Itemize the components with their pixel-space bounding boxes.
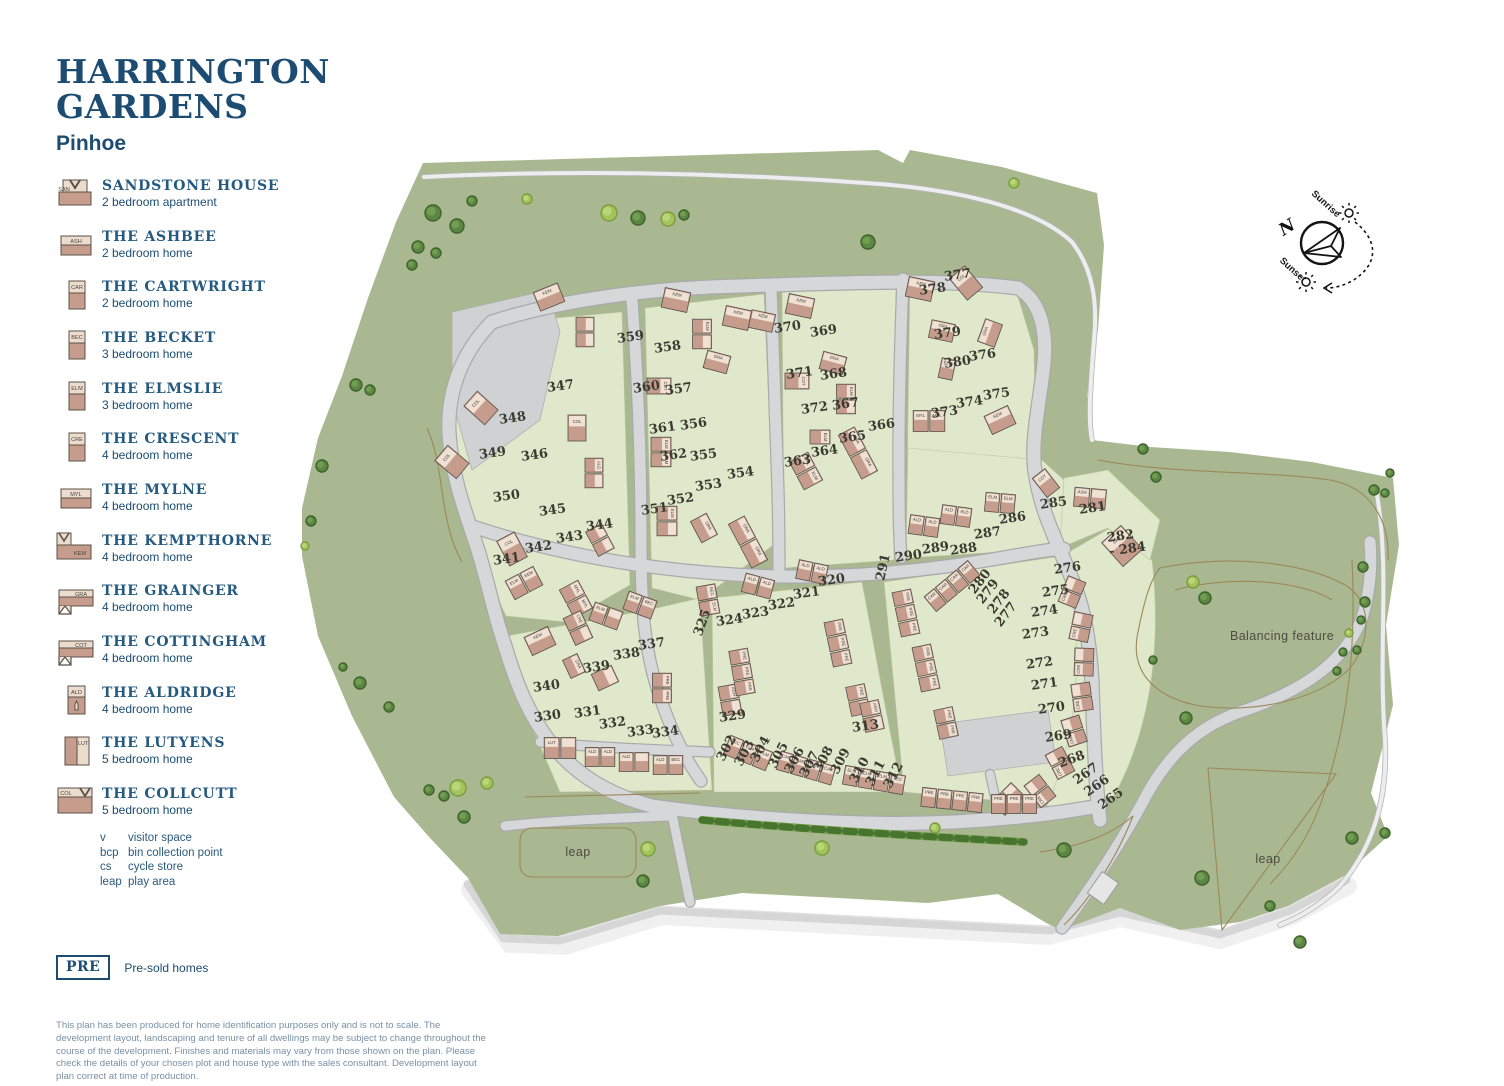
legend-item-lutyens: LUT THE LUTYENS 5 bedroom home: [56, 726, 279, 777]
house-type-legend: SAN SANDSTONE HOUSE 2 bedroom apartment …: [56, 168, 279, 827]
svg-text:PRE: PRE: [956, 793, 965, 799]
svg-text:ALD: ALD: [588, 749, 596, 754]
svg-text:ASH: ASH: [70, 239, 82, 245]
legend-item-mylne: MYL THE MYLNE 4 bedroom home: [56, 472, 279, 523]
key-label: bin collection point: [128, 846, 223, 861]
svg-text:MYL: MYL: [916, 413, 925, 418]
legend-item-collcutt: COL THE COLLCUTT 5 bedroom home: [56, 776, 279, 827]
legend-item-elmslie: ELM THE ELMSLIE 3 bedroom home: [56, 371, 279, 422]
house-type-name: THE BECKET: [102, 330, 216, 346]
house-type-name: THE LUTYENS: [102, 735, 225, 751]
house-type-icon: BEC: [56, 328, 98, 362]
house-type-icon: MYL: [56, 480, 98, 514]
svg-text:PRE: PRE: [925, 789, 934, 795]
house-type-name: THE GRAINGER: [102, 583, 239, 599]
house-type-desc: 3 bedroom home: [102, 347, 216, 361]
house-type-icon: CRE: [56, 430, 98, 464]
key-code: v: [100, 831, 128, 846]
page-title: HARRINGTON GARDENS: [56, 55, 456, 124]
svg-text:ELM: ELM: [71, 386, 83, 392]
svg-text:ELM: ELM: [705, 322, 710, 331]
svg-text:SAN: SAN: [58, 187, 70, 193]
house-type-desc: 4 bedroom home: [102, 600, 239, 614]
svg-text:PRE: PRE: [1010, 796, 1019, 801]
house-row: COL: [568, 415, 586, 441]
svg-text:ELM: ELM: [670, 509, 675, 518]
legend-item-sandstone-house: SAN SANDSTONE HOUSE 2 bedroom apartment: [56, 168, 279, 219]
key-row-cycle-store: cs cycle store: [100, 860, 223, 875]
svg-text:ELM: ELM: [823, 433, 828, 442]
map-label: leap: [1255, 852, 1280, 866]
svg-text:ELM: ELM: [849, 387, 854, 396]
house-row: ELM: [810, 430, 830, 444]
svg-text:COL: COL: [60, 791, 72, 797]
svg-text:COT: COT: [75, 643, 87, 649]
legend-item-grainger: GRA THE GRAINGER 4 bedroom home: [56, 574, 279, 625]
house-type-desc: 2 bedroom home: [102, 296, 266, 310]
key-code: cs: [100, 860, 128, 875]
svg-text:LUT: LUT: [78, 741, 89, 747]
key-label: cycle store: [128, 860, 183, 875]
legend-item-ashbee: ASH THE ASHBEE 2 bedroom home: [56, 219, 279, 270]
legend-item-aldridge: ALD THE ALDRIDGE 4 bedroom home: [56, 675, 279, 726]
svg-text:ELM: ELM: [664, 440, 669, 449]
svg-text:ELM: ELM: [1004, 496, 1014, 502]
page-subtitle: Pinhoe: [56, 132, 456, 156]
house-type-name: THE COLLCUTT: [102, 786, 238, 802]
house-type-desc: 4 bedroom home: [102, 702, 237, 716]
house-type-name: THE ELMSLIE: [102, 381, 223, 397]
svg-text:ASH: ASH: [1078, 489, 1087, 495]
key-code: bcp: [100, 846, 128, 861]
house-type-name: THE CRESCENT: [102, 431, 239, 447]
house-type-name: THE ALDRIDGE: [102, 685, 237, 701]
key-row-play-area: leap play area: [100, 875, 223, 890]
house-type-icon: KEM: [56, 531, 98, 565]
house-type-desc: 3 bedroom home: [102, 398, 223, 412]
house-type-desc: 4 bedroom home: [102, 550, 272, 564]
house-type-desc: 4 bedroom home: [102, 651, 267, 665]
legend-item-kempthorne: KEM THE KEMPTHORNE 4 bedroom home: [56, 523, 279, 574]
svg-text:CRE: CRE: [1076, 664, 1081, 673]
house-type-icon: COL: [56, 785, 98, 819]
legend-item-cartwright: CAR THE CARTWRIGHT 2 bedroom home: [56, 269, 279, 320]
svg-text:PRE: PRE: [665, 691, 670, 700]
svg-text:LUT: LUT: [548, 740, 556, 745]
key-code: leap: [100, 875, 128, 890]
house-type-desc: 2 bedroom home: [102, 246, 217, 260]
house-row: PREPREPRE: [991, 795, 1036, 814]
svg-text:ELM: ELM: [988, 494, 998, 500]
compass-needle: [1304, 228, 1341, 257]
svg-text:ALD: ALD: [604, 749, 612, 754]
svg-text:PRE: PRE: [665, 676, 670, 685]
house-type-desc: 4 bedroom home: [102, 448, 239, 462]
svg-text:PRE: PRE: [1025, 796, 1034, 801]
map-label: leap: [565, 845, 590, 859]
svg-text:BEC: BEC: [671, 757, 680, 762]
compass-north-label: N: [1275, 214, 1301, 240]
house-type-name: THE CARTWRIGHT: [102, 279, 266, 295]
svg-text:PRE: PRE: [994, 796, 1003, 801]
house-type-icon: CAR: [56, 278, 98, 312]
svg-text:ALD: ALD: [71, 690, 82, 696]
svg-text:ALD: ALD: [622, 754, 630, 759]
house-type-icon: GRA: [56, 582, 98, 616]
svg-text:CAR: CAR: [71, 285, 83, 291]
house-type-icon: ELM: [56, 379, 98, 413]
house-type-icon: COT: [56, 633, 98, 667]
legend-item-crescent: CRE THE CRESCENT 4 bedroom home: [56, 421, 279, 472]
compass-sunrise-label: Sunrise: [1309, 188, 1342, 220]
header: HARRINGTON GARDENS Pinhoe: [56, 55, 456, 156]
key-row-visitor: v visitor space: [100, 831, 223, 846]
house-type-icon: LUT: [56, 734, 98, 768]
house-type-name: THE ASHBEE: [102, 229, 217, 245]
house-type-icon: ALD: [56, 683, 98, 717]
map-label: Balancing feature: [1230, 629, 1334, 643]
svg-text:PRE: PRE: [971, 794, 980, 800]
house-type-desc: 4 bedroom home: [102, 499, 207, 513]
compass-circle: [1301, 222, 1343, 264]
presold-key: PRE Pre-sold homes: [56, 955, 208, 980]
svg-text:MYL: MYL: [70, 492, 82, 498]
pre-badge: PRE: [56, 955, 110, 980]
key-label: play area: [128, 875, 175, 890]
pre-label: Pre-sold homes: [124, 961, 208, 975]
house-type-name: THE COTTINGHAM: [102, 634, 267, 650]
house-type-name: SANDSTONE HOUSE: [102, 178, 279, 194]
house-type-desc: 5 bedroom home: [102, 803, 238, 817]
key-label: visitor space: [128, 831, 192, 846]
legend-item-cottingham: COT THE COTTINGHAM 4 bedroom home: [56, 624, 279, 675]
key-row-bcp: bcp bin collection point: [100, 846, 223, 861]
svg-text:ALD: ALD: [597, 461, 602, 469]
legend-item-becket: BEC THE BECKET 3 bedroom home: [56, 320, 279, 371]
house-type-name: THE KEMPTHORNE: [102, 533, 272, 549]
svg-text:PRE: PRE: [940, 791, 949, 797]
svg-text:BEC: BEC: [71, 335, 83, 341]
compass-sunset-label: Sunset: [1277, 255, 1309, 285]
house-type-name: THE MYLNE: [102, 482, 207, 498]
svg-text:KEM: KEM: [74, 551, 86, 557]
disclaimer-text: This plan has been produced for home ide…: [56, 1020, 486, 1084]
house-type-icon: SAN: [56, 176, 98, 210]
house-type-desc: 2 bedroom apartment: [102, 195, 279, 209]
map-key: v visitor space bcp bin collection point…: [100, 831, 223, 889]
svg-text:CRE: CRE: [71, 437, 83, 443]
sunrise-sun-icon: [1339, 203, 1359, 223]
svg-text:GRA: GRA: [75, 592, 87, 598]
svg-text:COL: COL: [573, 419, 582, 424]
svg-text:ALD: ALD: [656, 757, 664, 762]
site-plan-page: COLCOLCOLKEMCOLALDELMKEMMYLMYLKEMELMCOTE…: [0, 0, 1504, 1086]
house-type-icon: ASH: [56, 227, 98, 261]
compass: N Sunrise Sunset: [1275, 188, 1373, 293]
house-type-desc: 5 bedroom home: [102, 752, 225, 766]
